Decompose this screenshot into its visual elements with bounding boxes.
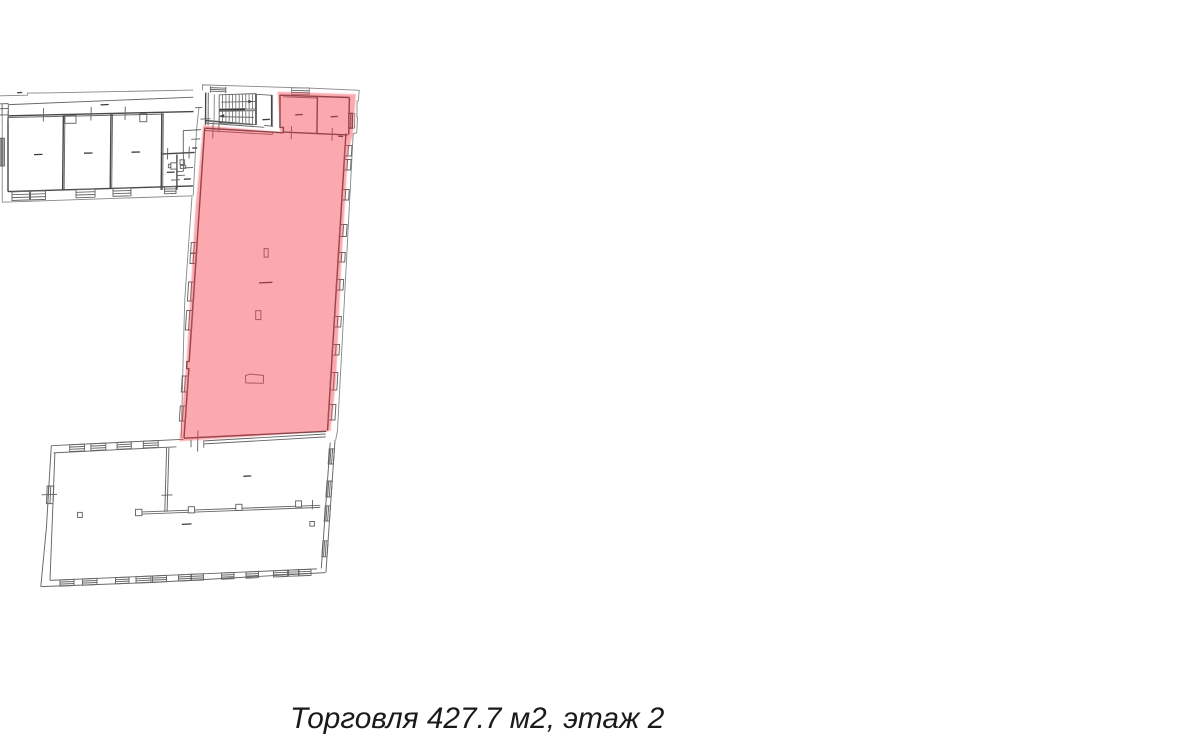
svg-text:Торговля 427.7 м2, этаж 2: Торговля 427.7 м2, этаж 2 <box>290 702 665 735</box>
